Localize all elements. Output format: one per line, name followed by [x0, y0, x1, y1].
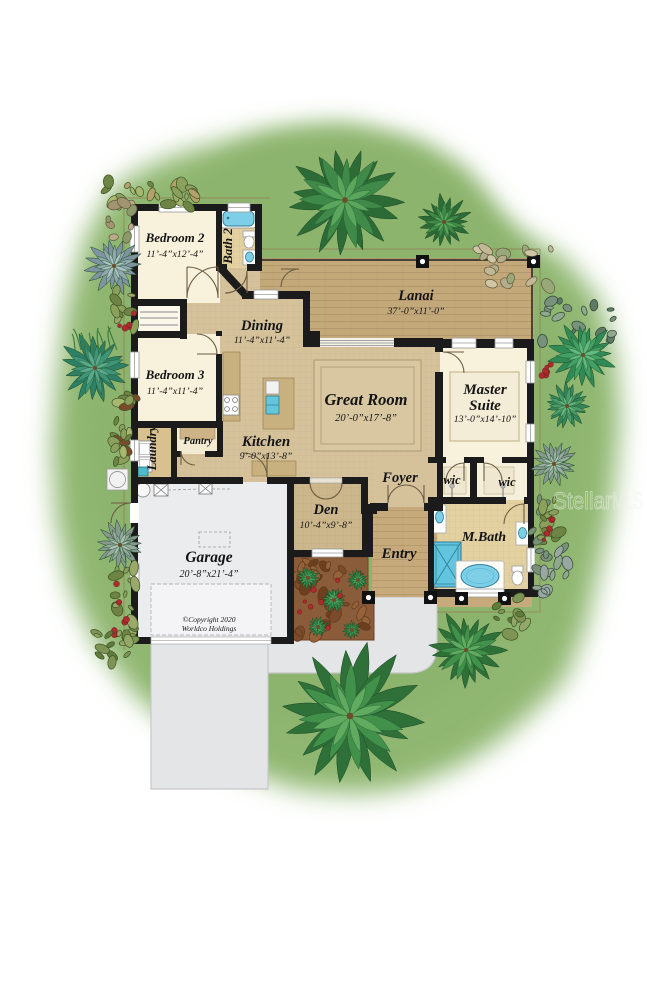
svg-text:MLS: MLS: [612, 488, 643, 515]
svg-text:©Copyright 2020: ©Copyright 2020: [183, 615, 236, 624]
svg-text:wic: wic: [443, 473, 461, 487]
svg-text:13’-0”x14’-10”: 13’-0”x14’-10”: [454, 414, 517, 425]
svg-text:wic: wic: [498, 475, 516, 489]
svg-text:37’-0”x11’-0”: 37’-0”x11’-0”: [387, 306, 445, 317]
svg-text:20’-8”x21’-4”: 20’-8”x21’-4”: [180, 569, 239, 580]
svg-text:Bath 2: Bath 2: [220, 228, 235, 265]
svg-text:Stellar: Stellar: [553, 488, 612, 515]
svg-text:11’-4”x11’-4”: 11’-4”x11’-4”: [234, 335, 290, 346]
svg-text:Lanai: Lanai: [397, 288, 433, 304]
svg-text:Entry: Entry: [380, 546, 416, 562]
svg-text:20’-0”x17’-8”: 20’-0”x17’-8”: [335, 413, 397, 424]
svg-text:11’-4”x12’-4”: 11’-4”x12’-4”: [147, 249, 204, 260]
svg-text:Bedroom 2: Bedroom 2: [145, 230, 205, 245]
svg-text:Laundry: Laundry: [145, 425, 159, 471]
svg-text:Kitchen: Kitchen: [241, 434, 290, 450]
svg-text:Den: Den: [313, 502, 339, 518]
svg-text:11’-4”x11’-4”: 11’-4”x11’-4”: [147, 386, 203, 397]
svg-text:Foyer: Foyer: [381, 470, 418, 486]
svg-text:10’-4”x9’-8”: 10’-4”x9’-8”: [300, 520, 353, 531]
svg-text:M.Bath: M.Bath: [461, 530, 506, 545]
svg-text:Master: Master: [462, 382, 507, 398]
svg-text:9’-0”x13’-8”: 9’-0”x13’-8”: [240, 451, 293, 462]
svg-text:Bedroom 3: Bedroom 3: [145, 367, 205, 382]
svg-text:Worldco Holdings: Worldco Holdings: [182, 624, 237, 633]
svg-text:Garage: Garage: [185, 549, 232, 566]
svg-text:Pantry: Pantry: [183, 436, 213, 447]
svg-text:Dining: Dining: [240, 318, 283, 334]
svg-text:Suite: Suite: [469, 398, 501, 414]
svg-text:Great Room: Great Room: [325, 390, 408, 409]
